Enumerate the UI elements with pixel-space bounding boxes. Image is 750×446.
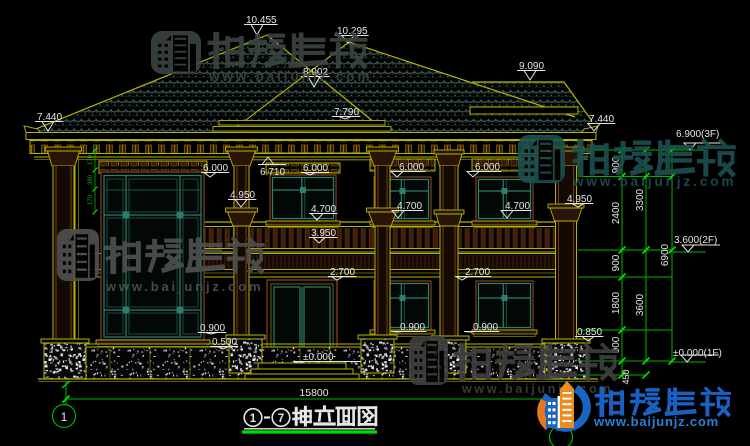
svg-text:15800: 15800 — [299, 387, 328, 399]
svg-text:170: 170 — [88, 154, 94, 165]
svg-text:www.baijunjz.com: www.baijunjz.com — [461, 382, 613, 396]
svg-text:7: 7 — [278, 413, 284, 425]
svg-text:3.600(2F): 3.600(2F) — [674, 235, 717, 246]
svg-text:380: 380 — [88, 174, 94, 185]
svg-text:3300: 3300 — [635, 188, 646, 211]
svg-text:6.900(3F): 6.900(3F) — [676, 129, 719, 140]
svg-text:www.baijunjz.com: www.baijunjz.com — [572, 174, 736, 189]
svg-text:900: 900 — [611, 254, 622, 271]
svg-text:450: 450 — [621, 369, 631, 384]
svg-text:±0.000(1F): ±0.000(1F) — [673, 348, 722, 359]
svg-text:6900: 6900 — [660, 243, 671, 266]
svg-text:1800: 1800 — [611, 291, 622, 314]
svg-text:3600: 3600 — [635, 293, 646, 316]
svg-text:2400: 2400 — [611, 201, 622, 224]
svg-text:1: 1 — [250, 413, 257, 425]
svg-text:6.710: 6.710 — [260, 167, 285, 178]
svg-text:1: 1 — [61, 410, 68, 424]
svg-text:www.baijunjz.com: www.baijunjz.com — [105, 279, 263, 294]
svg-text:www.baijunjz.com: www.baijunjz.com — [208, 69, 372, 84]
svg-text:www.baijunjz.com: www.baijunjz.com — [593, 414, 719, 429]
svg-text:170: 170 — [88, 194, 94, 205]
